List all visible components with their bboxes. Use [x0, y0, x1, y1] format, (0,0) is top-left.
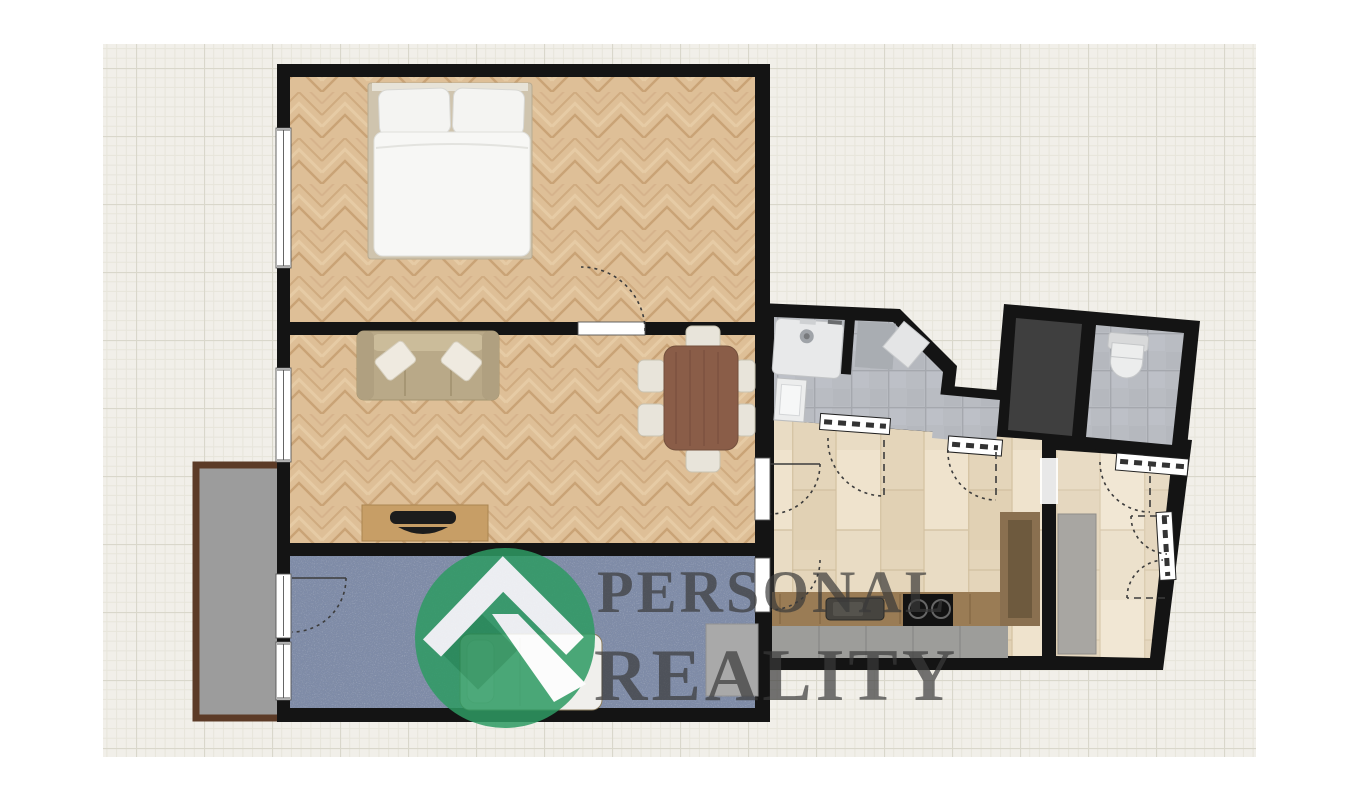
- tv-stand: [362, 505, 488, 541]
- bedroom-doorway: [578, 322, 645, 335]
- dining-table: [664, 346, 738, 450]
- living-to-hall-opening: [755, 458, 770, 520]
- floor-plan: PERSONAL REALITY: [0, 0, 1358, 811]
- chair: [736, 360, 755, 392]
- balcony-door-opening: [276, 574, 291, 638]
- watermark: PERSONAL REALITY: [415, 548, 959, 728]
- storage-floor: [1008, 318, 1082, 436]
- chair: [638, 404, 665, 436]
- chair: [638, 360, 665, 392]
- watermark-line2: REALITY: [594, 635, 959, 717]
- bathtub: [772, 318, 844, 379]
- watermark-line1: PERSONAL: [597, 559, 948, 625]
- hallway-wardrobe: [1058, 514, 1096, 654]
- carpet-room-window: [276, 642, 291, 700]
- sofa: [357, 331, 499, 400]
- chair: [736, 404, 755, 436]
- floorplan-canvas: PERSONAL REALITY: [0, 0, 1358, 811]
- kitchen-hallway-opening: [1040, 458, 1058, 504]
- living-room-window: [276, 368, 291, 462]
- entrance-door-threshold: [1156, 512, 1176, 581]
- double-bed: [368, 83, 532, 259]
- vestibule-floor: [932, 394, 1000, 444]
- personal-reality-logo-icon: [415, 548, 595, 728]
- bedroom-window: [276, 128, 291, 268]
- chair: [686, 448, 720, 472]
